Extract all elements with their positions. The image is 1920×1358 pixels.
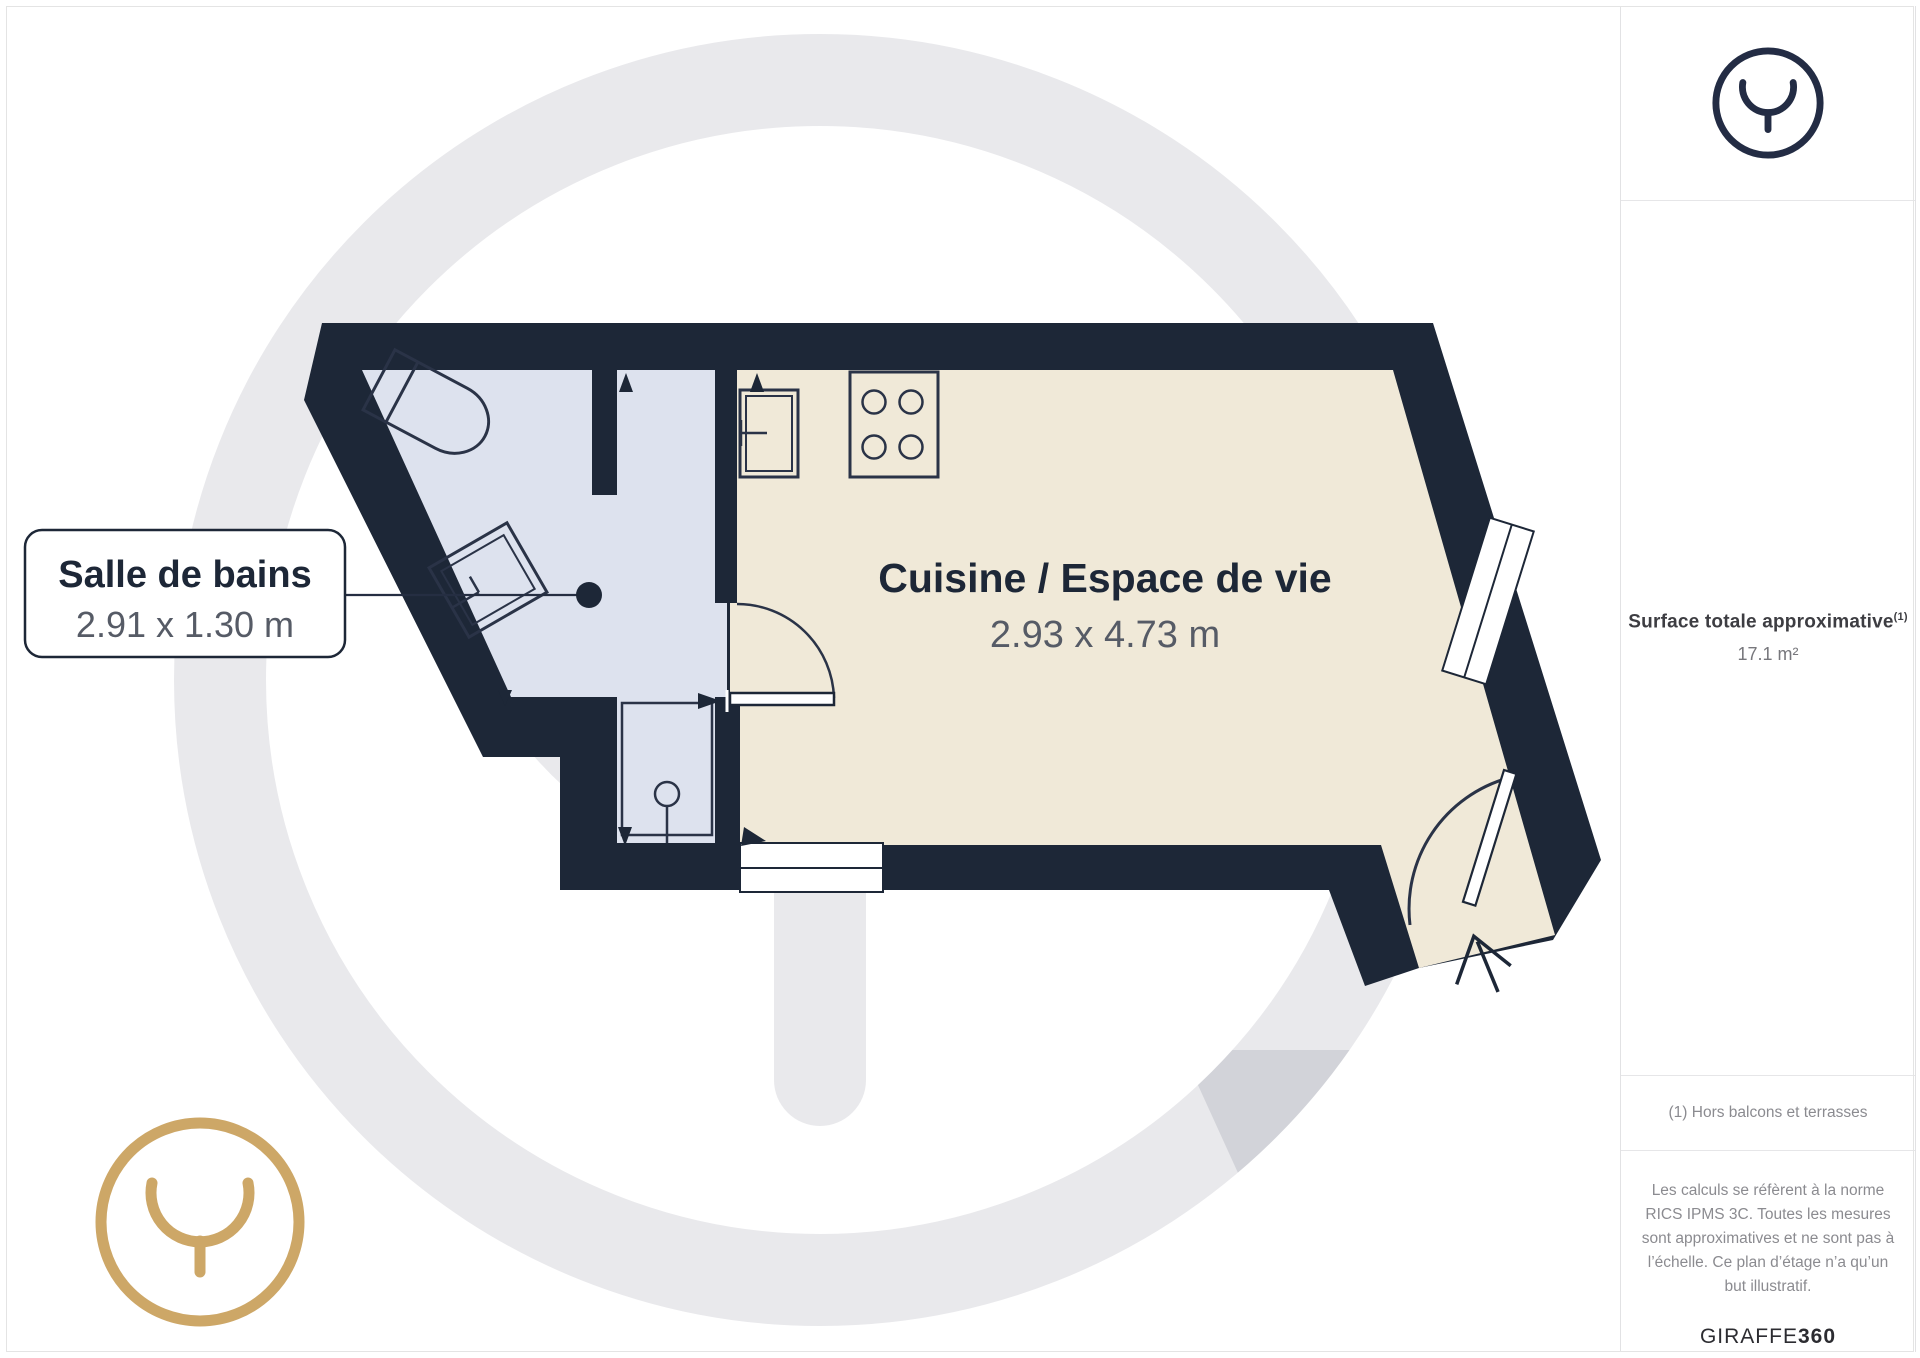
footnote-section: (1) Hors balcons et terrasses (1621, 1076, 1915, 1151)
sidebar-logo-section (1621, 6, 1915, 201)
label-leader-dot (576, 582, 602, 608)
giraffe360-wordmark: GIRAFFE360 (1700, 1325, 1836, 1349)
wall-stub-top (592, 370, 617, 495)
living-room-dimensions: 2.93 x 4.73 m (990, 614, 1220, 656)
giraffe360-logo-gold-icon (101, 1123, 299, 1321)
bathroom-label: Salle de bains 2.91 x 1.30 m (25, 530, 345, 657)
info-sidebar: Surface totale approximative(1) 17.1 m² … (1620, 6, 1916, 1352)
surface-total-label: Surface totale approximative(1) (1628, 611, 1907, 633)
surface-total-section: Surface totale approximative(1) 17.1 m² (1621, 201, 1915, 1076)
surface-note-ref: (1) (1894, 611, 1908, 623)
wall-partition-bath (715, 370, 737, 603)
bathroom-name: Salle de bains (58, 554, 311, 596)
disclaimer-section: Les calculs se réfèrent à la norme RICS … (1621, 1151, 1915, 1352)
wall-partition-shower (715, 697, 740, 845)
bathroom-dimensions: 2.91 x 1.30 m (76, 604, 294, 645)
footnote-text: (1) Hors balcons et terrasses (1669, 1104, 1868, 1122)
living-room-name: Cuisine / Espace de vie (878, 555, 1331, 601)
floorplan-drawing: Salle de bains 2.91 x 1.30 m Cuisine / E… (0, 0, 1622, 1358)
giraffe360-logo-icon (1709, 44, 1827, 162)
window-bottom (740, 843, 883, 892)
surface-total-value: 17.1 m² (1737, 644, 1798, 665)
floorplan-canvas: Salle de bains 2.91 x 1.30 m Cuisine / E… (0, 0, 1622, 1358)
disclaimer-text: Les calculs se réfèrent à la norme RICS … (1640, 1179, 1896, 1299)
